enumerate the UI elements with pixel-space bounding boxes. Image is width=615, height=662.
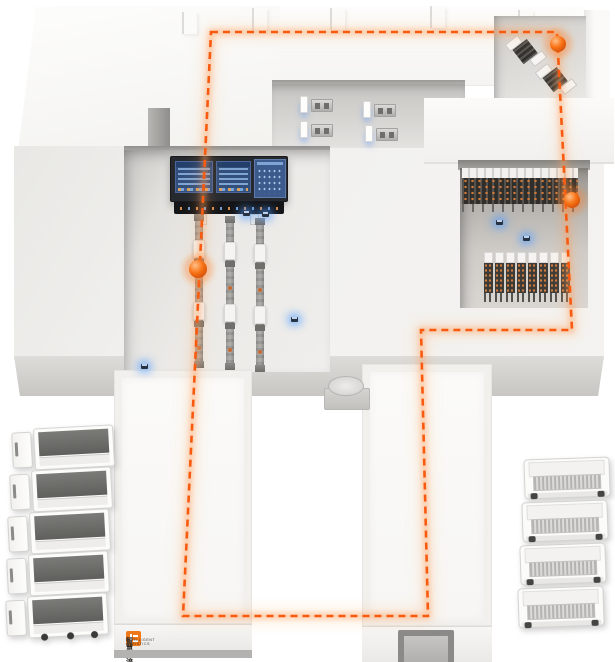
conveyor-station-box: [193, 302, 205, 320]
dock-ramp-right: [362, 364, 492, 662]
iot-sensor-dot: [496, 220, 503, 225]
truck-wheel: [595, 534, 602, 540]
truck-grille: [533, 474, 601, 491]
iot-sensor-dot: [243, 211, 250, 216]
iot-sensor-dot: [523, 236, 530, 241]
iot-sensor-dot: [262, 212, 269, 217]
conveyor-station-box: [224, 242, 236, 260]
conveyor-endcap: [194, 214, 204, 221]
truck-cab: [9, 474, 31, 511]
storage-rack: [517, 252, 526, 302]
conveyor-station-box: [193, 240, 205, 258]
workstation: [300, 121, 334, 141]
panel-footer-leds: [178, 188, 210, 191]
logo-line2: INTELLIGENT LOGISTICS: [126, 639, 155, 646]
conveyor-endcap: [255, 218, 265, 225]
truck-windshield: [11, 526, 15, 540]
panel-header: [257, 162, 283, 165]
rack-cargo-dots: [462, 178, 578, 204]
workstation-desk: [311, 99, 333, 112]
box-truck: [517, 586, 604, 629]
semi-truck: [7, 508, 111, 555]
workstation-tower: [365, 125, 373, 142]
trailer-open-cargo: [34, 513, 105, 541]
conveyor-marker-dot: [258, 350, 262, 354]
conveyor-endcap: [194, 361, 204, 368]
conveyor-endcap: [255, 365, 265, 372]
truck-wheel: [591, 620, 598, 626]
truck-grille: [529, 560, 597, 577]
rack-cap: [528, 252, 537, 263]
ramp-surface: [362, 364, 492, 626]
rack-body: [528, 263, 537, 293]
box-truck: [519, 543, 606, 586]
roof-right-slab: [424, 98, 614, 164]
truck-cab: [5, 600, 27, 637]
screen-table-panel-left: [175, 161, 213, 193]
trailer-open-cargo: [38, 429, 109, 457]
truck-cab: [11, 432, 33, 469]
rack-body: [484, 263, 493, 293]
truck-wheel: [41, 634, 48, 641]
workstation-tower: [300, 96, 308, 113]
rack-legs: [550, 293, 559, 302]
wall-notch: [252, 8, 267, 30]
dock-doorway-inner: [404, 636, 448, 662]
rack-cap: [495, 252, 504, 263]
rack-legs: [506, 293, 515, 302]
semi-truck: [6, 550, 110, 597]
conveyor-line: [224, 216, 236, 370]
ramp-bottom-edge: [114, 650, 252, 658]
trailer-open-cargo: [36, 471, 107, 499]
ramp-surface: [114, 370, 252, 624]
conveyor-joint: [225, 323, 235, 329]
conveyor-marker-dot: [197, 284, 201, 288]
wall-notch: [430, 6, 445, 28]
screen-bezel: [170, 156, 288, 202]
workstation-desk: [311, 124, 333, 137]
rack-cap: [517, 252, 526, 263]
workstation-tower: [363, 101, 371, 118]
rack-top-caps: [462, 168, 578, 178]
truck-wheel: [593, 577, 600, 583]
storage-rack: [484, 252, 493, 302]
truck-bumper: [524, 577, 604, 585]
truck-windshield: [15, 442, 19, 456]
storage-rack: [506, 252, 515, 302]
panel-grid-dots: [257, 168, 283, 194]
conveyor-station-box: [224, 304, 236, 322]
truck-bumper: [528, 491, 608, 499]
rack-body: [539, 263, 548, 293]
rack-legs: [484, 293, 493, 302]
box-truck: [521, 500, 608, 543]
conveyor-marker-dot: [258, 288, 262, 292]
conveyor-line: [254, 218, 266, 372]
semi-truck: [5, 592, 109, 639]
ramp-inner-surface: [370, 372, 484, 621]
workstation: [300, 96, 334, 116]
screen-led-strip: [180, 207, 278, 210]
dock-ramp-left: 智慧物流 INTELLIGENT LOGISTICS: [114, 370, 252, 658]
truck-bumper: [522, 620, 602, 628]
rack-legs: [462, 204, 578, 212]
conveyor-endcap: [225, 216, 235, 223]
trailer-open-cargo: [32, 597, 103, 625]
rack-body: [550, 263, 559, 293]
rack-cap: [539, 252, 548, 263]
rack-legs: [495, 293, 504, 302]
truck-wheel: [529, 536, 536, 542]
turntable-platform: [322, 382, 372, 410]
turntable-pad: [328, 376, 364, 396]
rack-body: [506, 263, 515, 293]
truck-windshield: [10, 568, 14, 582]
truck-grille: [527, 603, 595, 620]
box-truck: [523, 457, 610, 500]
truck-wheel: [531, 493, 538, 499]
storage-rack: [550, 252, 559, 302]
workstation-desk: [376, 128, 398, 141]
wall-notch: [330, 8, 345, 30]
desk-slot: [324, 103, 329, 109]
truck-cab: [7, 516, 29, 553]
storage-rack: [539, 252, 548, 302]
storage-rack: [495, 252, 504, 302]
conveyor-marker-dot: [228, 348, 232, 352]
ramp-front-face: [362, 626, 492, 662]
warehouse-scene: 智慧物流 INTELLIGENT LOGISTICS: [0, 0, 615, 662]
truck-wheel: [91, 631, 98, 638]
conveyor-joint: [255, 325, 265, 331]
rack-legs: [561, 293, 570, 302]
conveyor-station-box: [254, 244, 266, 262]
truck-wheel: [597, 491, 604, 497]
conveyor-marker-dot: [197, 346, 201, 350]
panel-data-rows: [219, 168, 248, 186]
rack-body: [495, 263, 504, 293]
rack-legs: [539, 293, 548, 302]
truck-trailer: [29, 508, 111, 554]
workstation: [363, 101, 397, 121]
truck-trailer: [33, 424, 115, 470]
truck-wheel: [525, 622, 532, 628]
screen-table-panel-mid: [216, 161, 251, 193]
truck-bumper: [526, 534, 606, 542]
truck-windshield: [9, 610, 13, 624]
conveyor-marker-dot: [228, 286, 232, 290]
conveyor-joint: [225, 261, 235, 267]
workstation-tower: [300, 121, 308, 138]
conveyor-station-box: [254, 306, 266, 324]
panel-header: [217, 162, 250, 167]
screen-grid-panel: [254, 159, 286, 198]
desk-slot: [378, 108, 383, 114]
desk-slot: [387, 108, 392, 114]
truck-wheel: [67, 632, 74, 639]
conveyor-joint: [194, 259, 204, 265]
desk-slot: [315, 128, 320, 134]
rack-cap: [506, 252, 515, 263]
trailer-open-cargo: [33, 555, 104, 583]
truck-trailer: [28, 550, 110, 596]
dock-doorway: [398, 630, 454, 662]
rack-body: [517, 263, 526, 293]
wall-notch: [182, 12, 197, 34]
rack-cap: [561, 252, 570, 263]
truck-grille: [531, 517, 599, 534]
panel-header: [176, 162, 212, 167]
desk-slot: [380, 132, 385, 138]
workstation-desk: [374, 104, 396, 117]
long-rack-row: [462, 168, 578, 212]
workstation: [365, 125, 399, 145]
truck-windshield: [13, 484, 17, 498]
ramp-inner-surface: [122, 378, 244, 619]
rack-body: [561, 263, 570, 293]
panel-data-rows: [178, 168, 210, 186]
rack-cap: [550, 252, 559, 263]
truck-trailer: [31, 466, 113, 512]
conveyor-joint: [194, 321, 204, 327]
semi-truck: [11, 424, 115, 471]
ramp-front-face: 智慧物流 INTELLIGENT LOGISTICS: [114, 624, 252, 650]
desk-slot: [315, 103, 320, 109]
truck-wheel: [527, 579, 534, 585]
conveyor-joint: [255, 263, 265, 269]
iot-sensor-dot: [291, 317, 298, 322]
iot-sensor-dot: [141, 364, 148, 369]
conveyor-line: [193, 214, 205, 368]
rack-cap: [484, 252, 493, 263]
conveyor-rail: [195, 214, 203, 368]
desk-slot: [324, 128, 329, 134]
rack-legs: [528, 293, 537, 302]
desk-slot: [389, 132, 394, 138]
right-wall: [584, 10, 610, 108]
conveyor-endcap: [225, 363, 235, 370]
storage-rack: [561, 252, 570, 302]
panel-footer-leds: [219, 188, 248, 191]
semi-truck: [9, 466, 113, 513]
storage-rack: [528, 252, 537, 302]
rack-legs: [517, 293, 526, 302]
truck-cab: [6, 558, 28, 595]
conveyor-rail: [226, 216, 234, 370]
conveyor-rail: [256, 218, 264, 372]
